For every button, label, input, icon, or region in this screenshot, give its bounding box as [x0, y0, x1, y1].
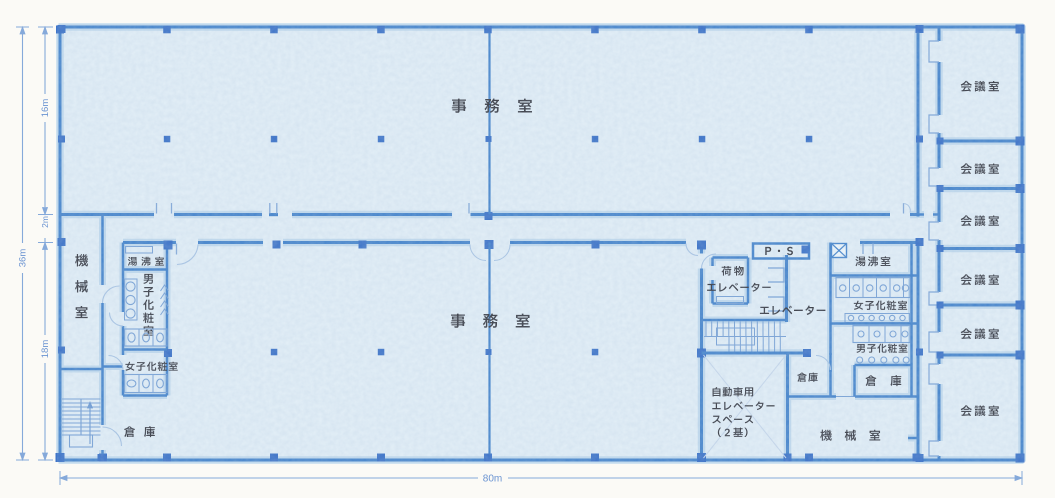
- svg-text:2m: 2m: [40, 216, 50, 228]
- svg-text:18m: 18m: [40, 340, 51, 359]
- svg-text:36m: 36m: [18, 249, 29, 268]
- svg-text:16m: 16m: [40, 99, 51, 118]
- svg-text:80m: 80m: [483, 474, 502, 485]
